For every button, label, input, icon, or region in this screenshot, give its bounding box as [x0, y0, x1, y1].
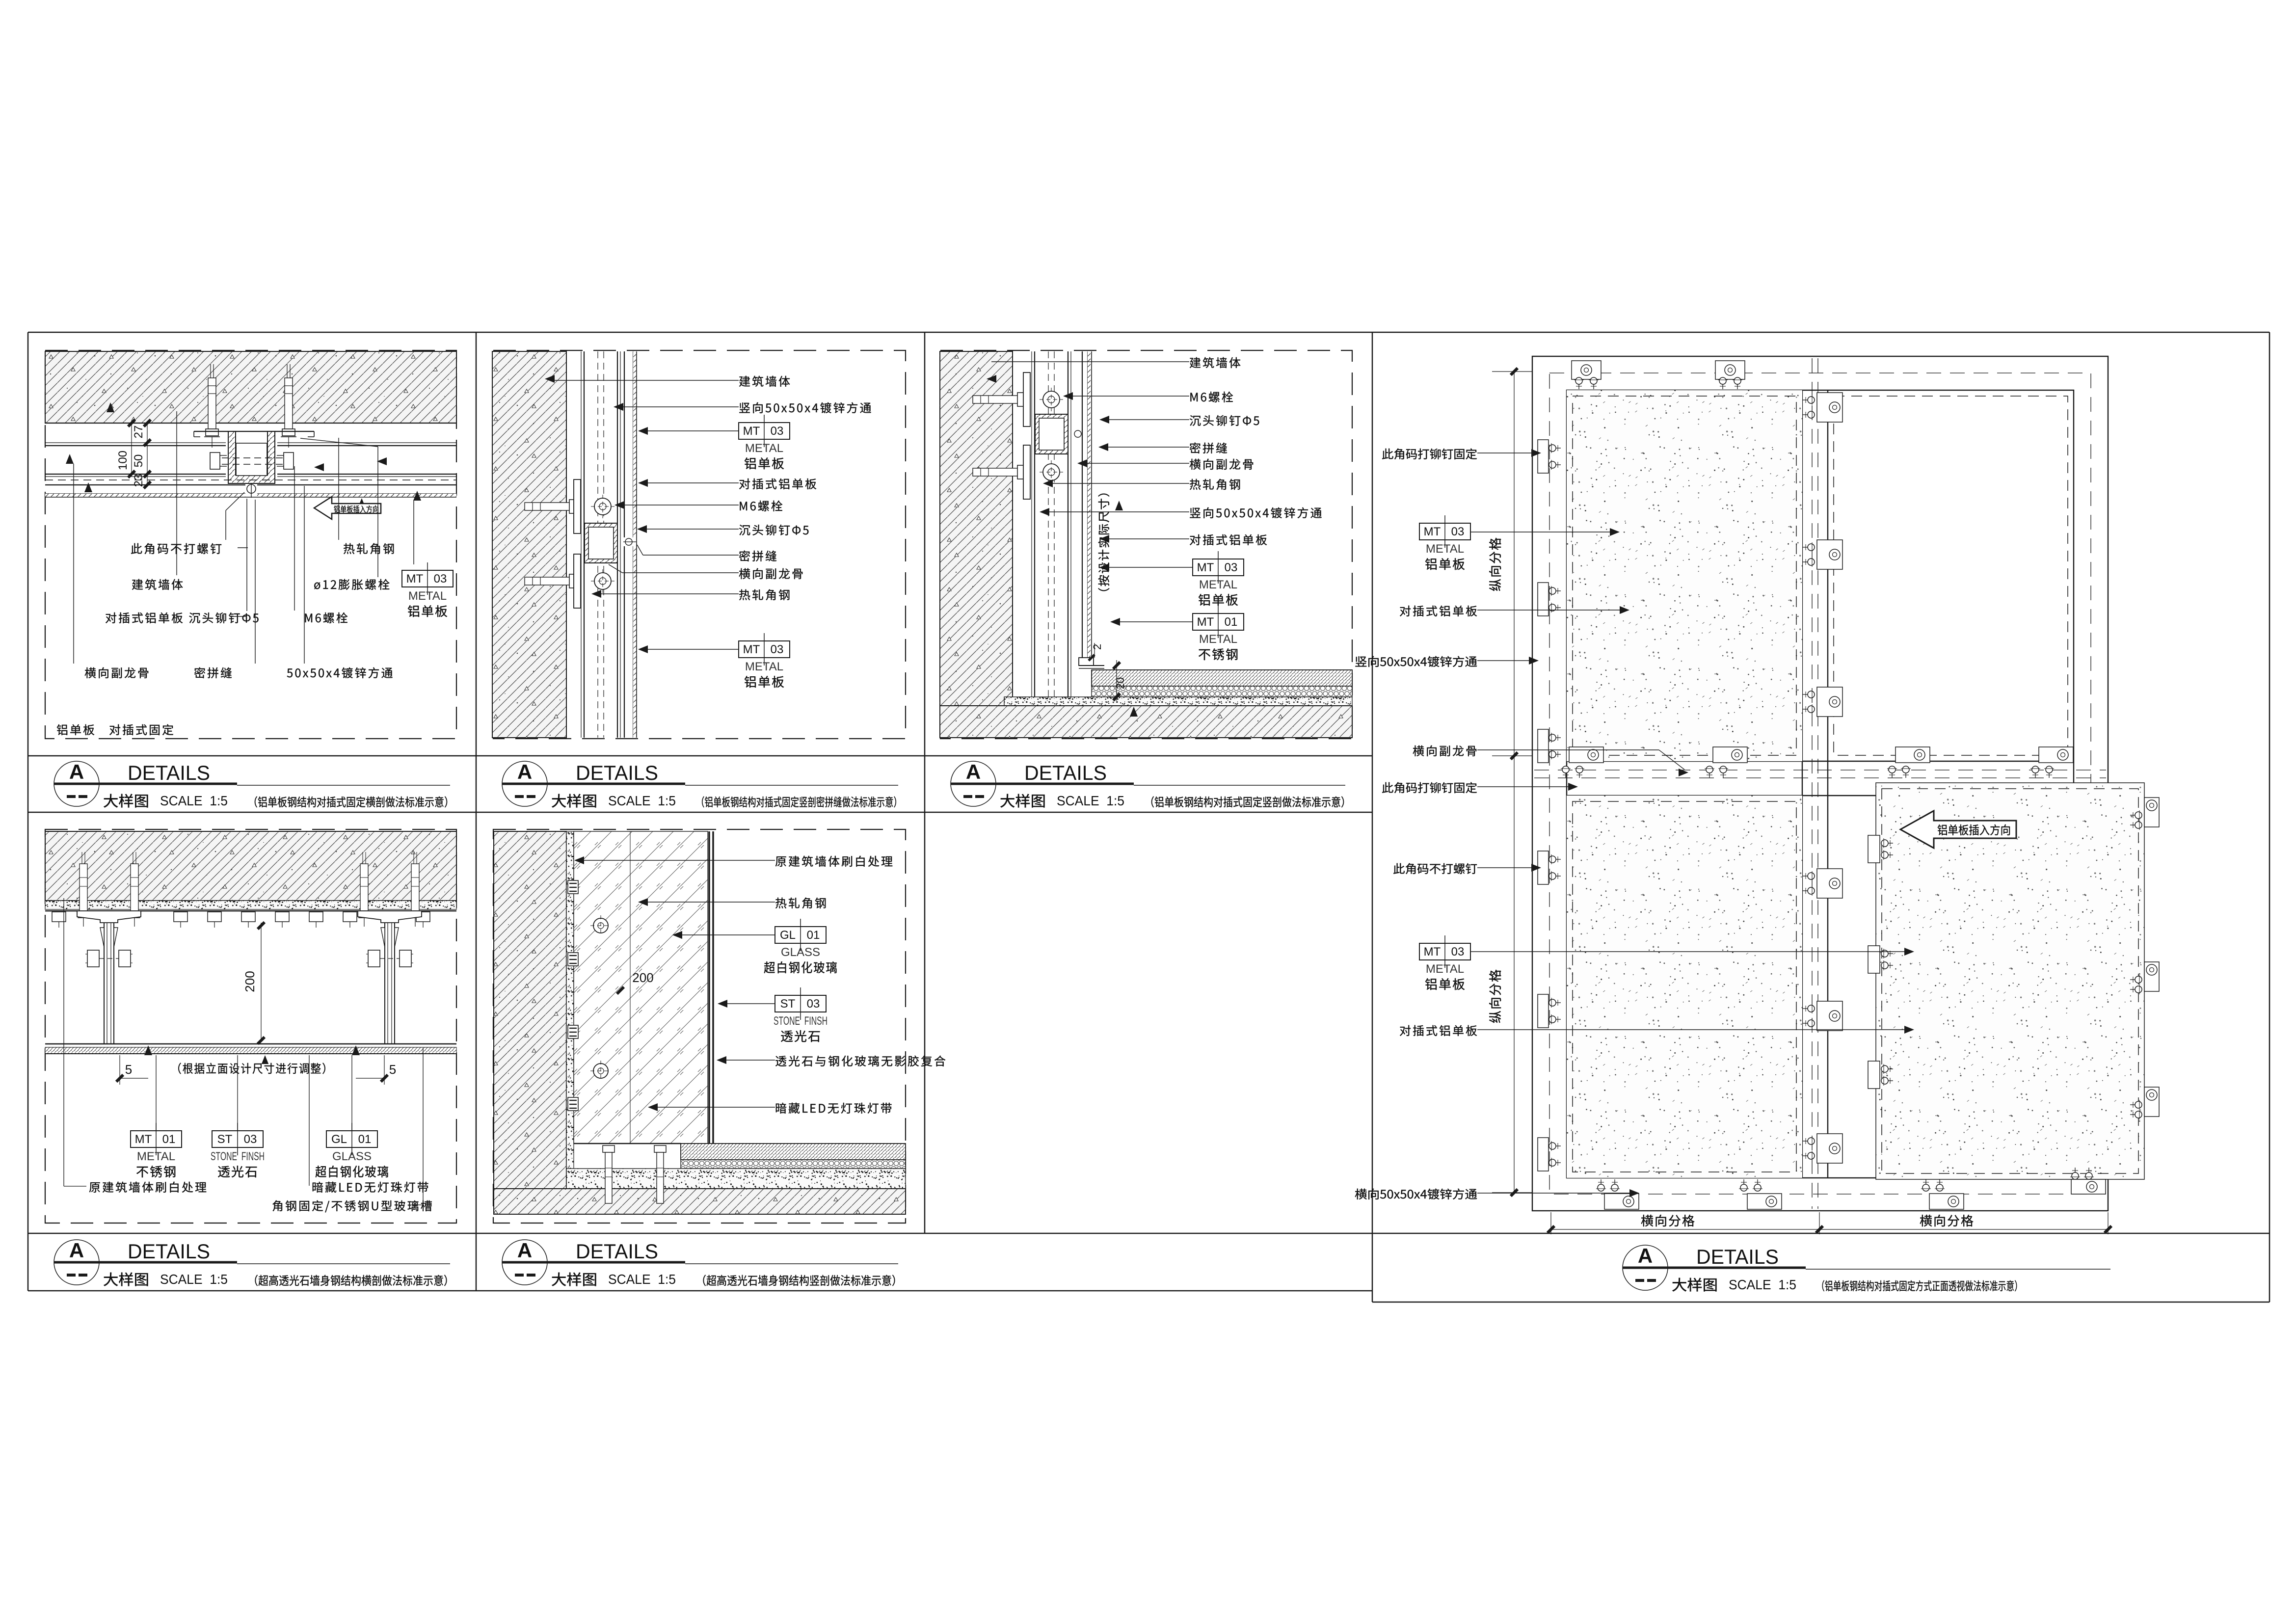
svg-text:A: A: [517, 1239, 532, 1262]
svg-text:GL: GL: [780, 929, 796, 942]
svg-text:100: 100: [116, 451, 130, 470]
svg-text:SCALE 1:5: SCALE 1:5: [160, 793, 228, 808]
svg-text:METAL: METAL: [408, 589, 447, 603]
svg-text:MT: MT: [406, 572, 424, 586]
svg-text:METAL: METAL: [745, 442, 783, 455]
svg-text:03: 03: [434, 572, 447, 586]
svg-text:METAL: METAL: [1426, 962, 1464, 976]
svg-text:MT: MT: [1197, 615, 1214, 629]
svg-text:03: 03: [807, 997, 820, 1011]
svg-text:MT: MT: [1197, 561, 1214, 574]
svg-text:MT: MT: [135, 1133, 152, 1146]
svg-text:SCALE 1:5: SCALE 1:5: [1729, 1277, 1796, 1292]
svg-text:MT: MT: [1424, 525, 1441, 538]
svg-text:DETAILS: DETAILS: [128, 1240, 210, 1263]
svg-text:23: 23: [132, 474, 145, 487]
svg-text:ST: ST: [780, 997, 796, 1011]
svg-text:METAL: METAL: [1199, 578, 1237, 591]
svg-text:SCALE 1:5: SCALE 1:5: [1057, 793, 1124, 808]
svg-text:01: 01: [1225, 615, 1238, 629]
svg-text:200: 200: [632, 970, 653, 985]
svg-text:5: 5: [125, 1062, 132, 1077]
svg-text:SCALE 1:5: SCALE 1:5: [608, 793, 676, 808]
svg-text:GLASS: GLASS: [781, 946, 820, 959]
svg-text:DETAILS: DETAILS: [576, 761, 658, 784]
svg-text:DETAILS: DETAILS: [1696, 1245, 1779, 1268]
svg-text:METAL: METAL: [137, 1150, 175, 1163]
svg-text:01: 01: [358, 1133, 372, 1146]
svg-text:03: 03: [1451, 945, 1465, 958]
svg-text:2: 2: [1091, 644, 1103, 650]
svg-text:03: 03: [771, 643, 784, 656]
svg-text:METAL: METAL: [745, 660, 783, 673]
svg-text:50: 50: [132, 454, 145, 468]
svg-text:A: A: [69, 1239, 84, 1262]
svg-text:GL: GL: [331, 1133, 347, 1146]
svg-text:A: A: [966, 760, 981, 783]
svg-text:DETAILS: DETAILS: [128, 761, 210, 784]
svg-text:03: 03: [771, 425, 784, 438]
svg-text:METAL: METAL: [1199, 633, 1237, 646]
svg-text:03: 03: [1451, 525, 1465, 538]
svg-text:MT: MT: [743, 425, 760, 438]
svg-text:A: A: [1638, 1244, 1653, 1267]
svg-text:03: 03: [1225, 561, 1238, 574]
svg-text:200: 200: [242, 971, 257, 992]
svg-text:DETAILS: DETAILS: [1024, 761, 1107, 784]
svg-text:5: 5: [389, 1062, 396, 1077]
svg-text:A: A: [517, 760, 532, 783]
svg-text:GLASS: GLASS: [332, 1150, 372, 1163]
svg-text:SCALE 1:5: SCALE 1:5: [608, 1272, 676, 1287]
svg-text:SCALE 1:5: SCALE 1:5: [160, 1272, 228, 1287]
svg-text:27: 27: [132, 426, 145, 439]
svg-text:01: 01: [807, 929, 820, 942]
svg-text:A: A: [69, 760, 84, 783]
svg-text:DETAILS: DETAILS: [576, 1240, 658, 1263]
svg-text:03: 03: [244, 1133, 257, 1146]
svg-text:STONE FINSH: STONE FINSH: [211, 1150, 265, 1163]
svg-text:20: 20: [1114, 677, 1126, 689]
svg-text:MT: MT: [743, 643, 760, 656]
svg-text:STONE FINSH: STONE FINSH: [774, 1014, 828, 1028]
svg-text:METAL: METAL: [1426, 542, 1464, 556]
svg-text:ST: ST: [217, 1133, 233, 1146]
svg-text:MT: MT: [1424, 945, 1441, 958]
svg-text:01: 01: [162, 1133, 176, 1146]
